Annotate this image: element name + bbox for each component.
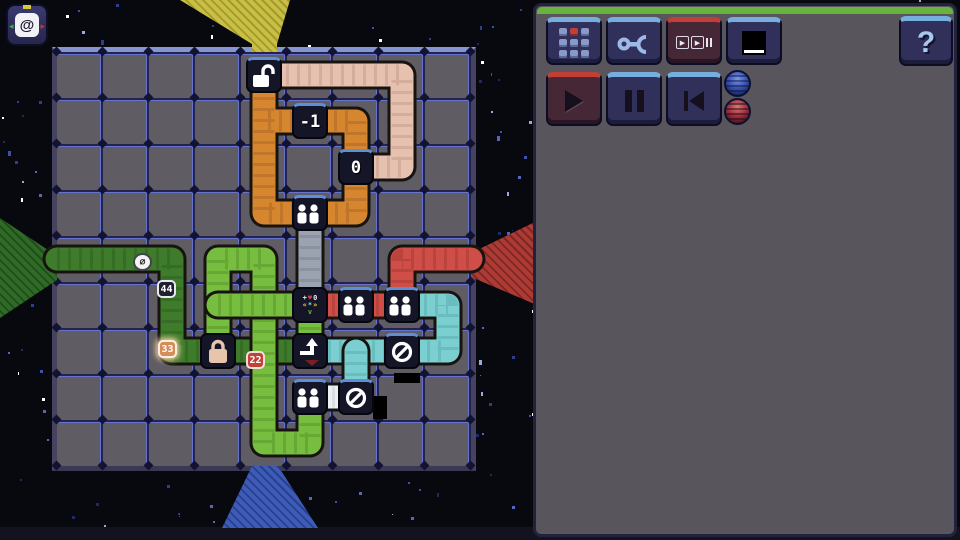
left-green-arrow-icon: ◂ [9,21,14,32]
puzzle-board: -10+♥0«*»v∅443322 [0,0,540,540]
funnel-top-yellow [180,0,290,52]
tile-lock-open[interactable] [246,57,282,93]
control-panel: ▶▶ ? [533,3,957,537]
restart-button[interactable] [666,72,722,126]
board-grid[interactable] [52,47,476,471]
value-badge-∅: ∅ [133,253,152,271]
panel-top-green-bar [537,7,953,14]
step-icon: ▶▶ [676,36,712,49]
pause-icon [625,90,644,112]
red-orb-token[interactable] [724,98,751,125]
crown-icon [23,5,31,9]
play-icon [565,90,583,112]
star-speck [919,0,921,2]
pipe-value-badge: ∅ [133,253,152,271]
pipe-value-badge: 44 [157,280,176,298]
tile-people[interactable] [292,379,328,415]
funnel-right-red [471,221,537,305]
tile-null[interactable] [384,333,420,369]
skip-back-icon [684,91,704,111]
funnel-left-green [0,218,57,318]
tile-number[interactable]: 0 [338,149,374,185]
tile-people[interactable] [292,195,328,231]
tile-number-label: -1 [300,112,320,132]
tile-lock-closed[interactable] [200,333,236,369]
tools-button[interactable] [606,17,662,65]
right-red-arrow-icon: ▸ [40,21,45,32]
help-button[interactable]: ? [899,16,953,66]
tile-number[interactable]: -1 [292,103,328,139]
mail-at-button[interactable]: ◂ ▸ @ [6,4,48,46]
keypad-icon [559,28,589,58]
tile-people[interactable] [338,287,374,323]
blue-orb-token[interactable] [724,70,751,97]
pause-button[interactable] [606,72,662,126]
funnel-bottom-blue [222,466,318,528]
tile-logic[interactable]: +♥0«*»v [292,287,328,323]
screen-icon [742,31,766,55]
question-mark-icon: ? [917,26,935,60]
value-badge-44: 44 [157,280,176,298]
value-badge-22: 22 [246,351,265,369]
wrench-icon [617,31,651,55]
screen-button[interactable] [726,17,782,65]
pipe-value-badge: 33 [158,340,177,358]
level-select-button[interactable] [546,17,602,65]
value-badge-33: 33 [158,340,177,358]
at-glyph: @ [15,13,39,37]
step-mode-button[interactable]: ▶▶ [666,17,722,65]
tile-number-label: 0 [351,158,361,178]
play-button[interactable] [546,72,602,126]
tile-shadow [373,396,387,419]
pipe-value-badge: 22 [246,351,265,369]
tile-redirect[interactable] [292,333,328,369]
tile-null[interactable] [338,379,374,415]
tile-shadow [394,373,420,383]
tile-people[interactable] [384,287,420,323]
